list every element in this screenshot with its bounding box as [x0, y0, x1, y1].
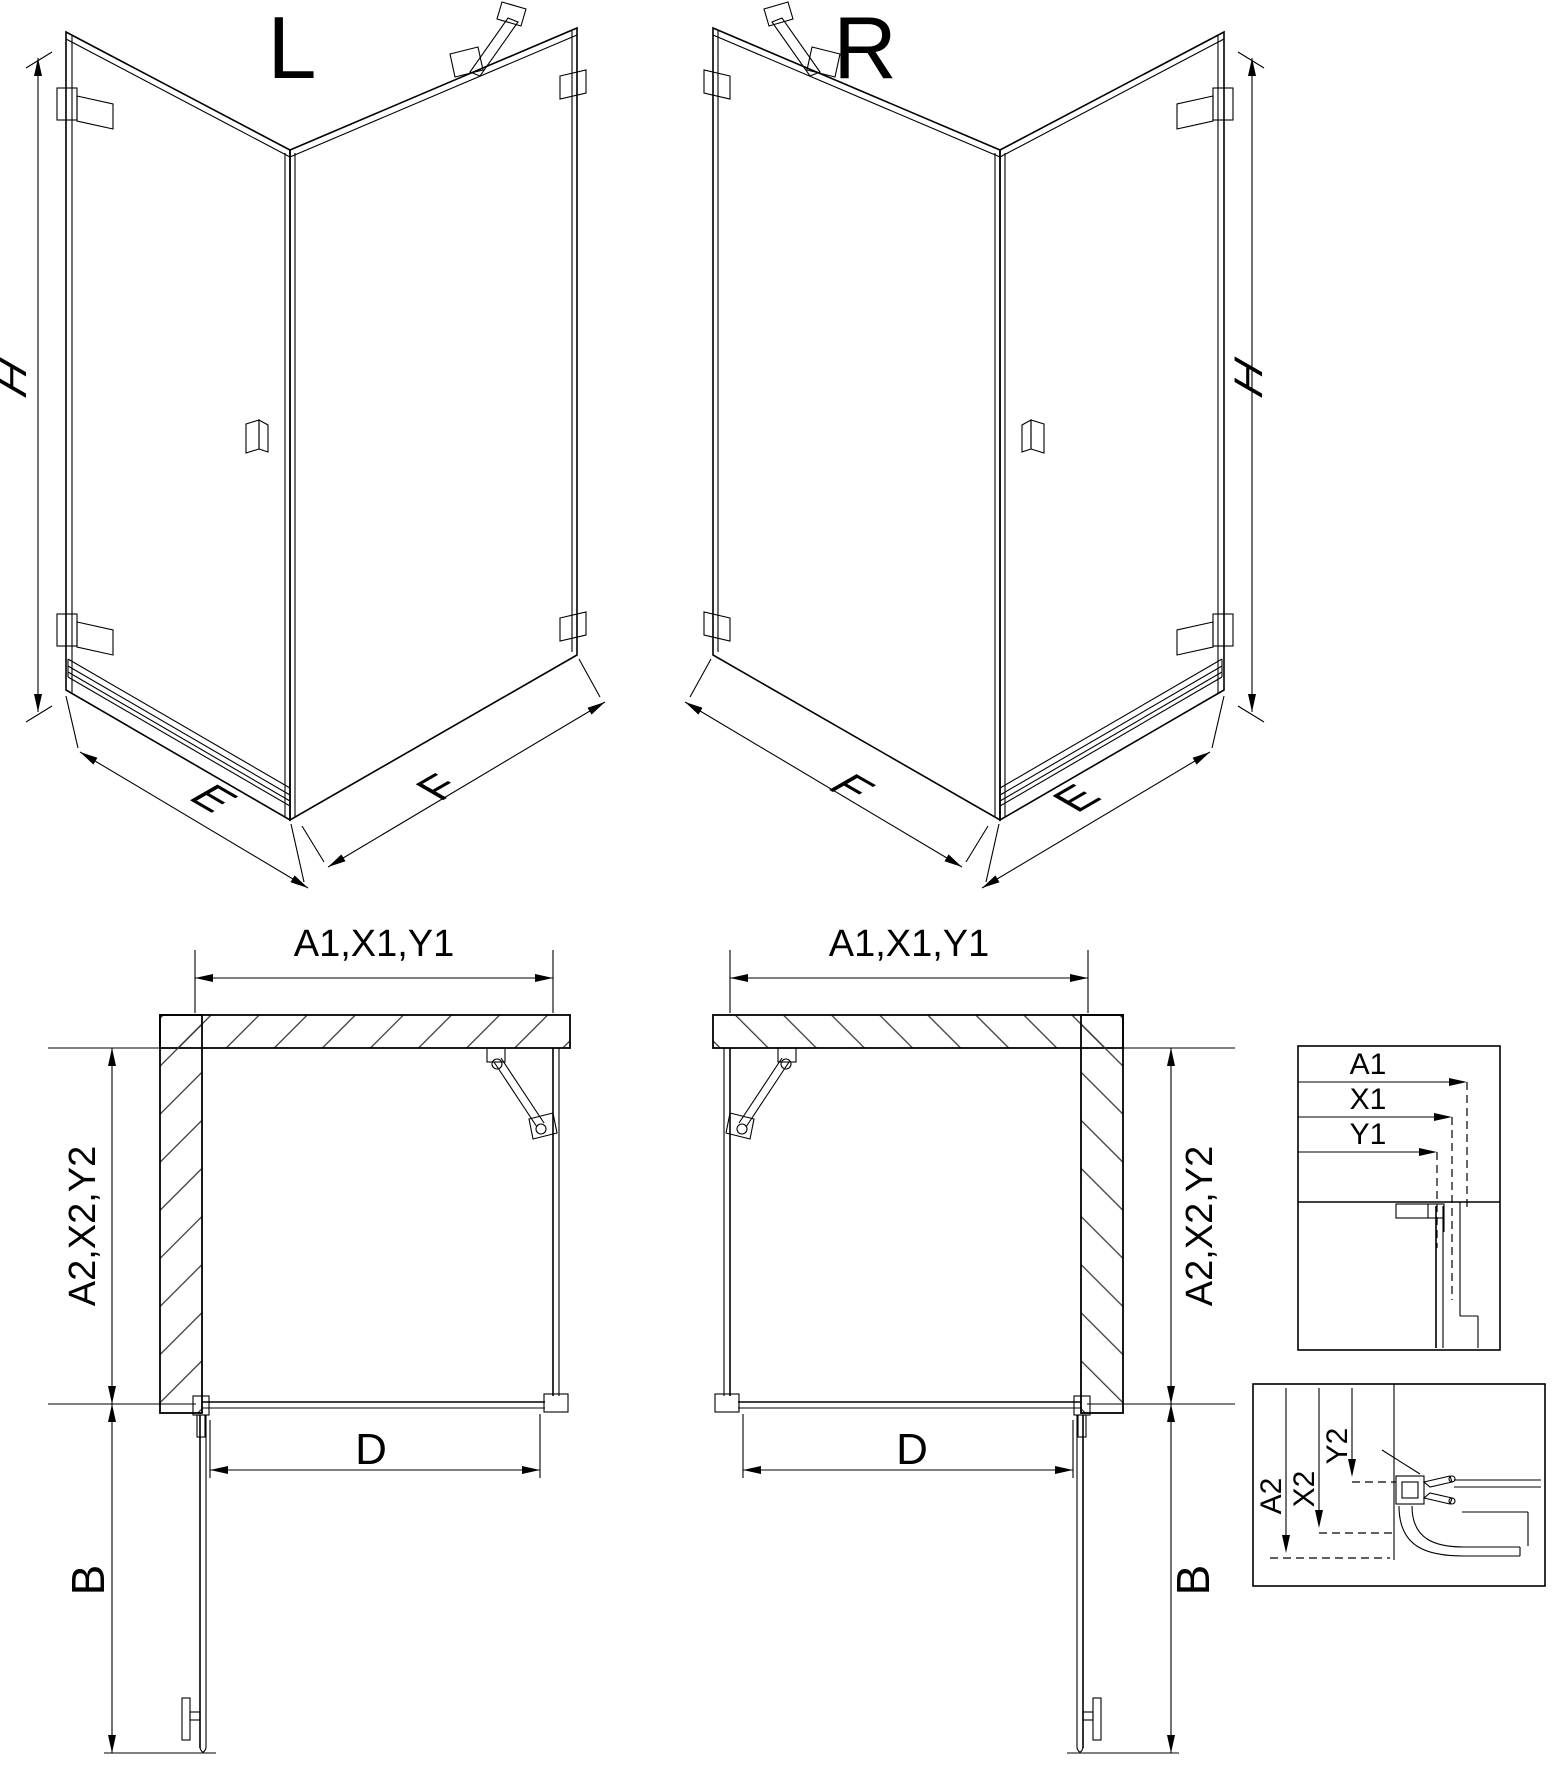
detail-a2-label: A2	[1255, 1478, 1288, 1515]
plan-view-left: A1,X1,Y1 A2,X2,Y2 D B	[48, 923, 570, 1753]
variant-label-right: R	[833, 0, 897, 97]
door-width-label-left: E	[178, 777, 250, 818]
plan-left-width-dims: A1,X1,Y1	[294, 923, 455, 965]
plan-right-opening-dim: D	[896, 1425, 928, 1474]
view-3d-right: R H E F	[685, 0, 1271, 888]
door-width-label-right: E	[1040, 777, 1112, 818]
plan-view-right: A1,X1,Y1 A2,X2,Y2 D B	[713, 923, 1235, 1753]
panel-width-label-left: F	[403, 767, 472, 807]
panel-width-label-right: F	[817, 767, 886, 807]
plan-left-swing-dim: B	[62, 1565, 114, 1596]
detail-box-width-offsets: A1 X1 Y1	[1298, 1046, 1500, 1350]
detail-y2-label: Y2	[1321, 1428, 1354, 1465]
height-dim-label-right: H	[1226, 347, 1271, 406]
view-3d-left: L H E F	[0, 0, 605, 888]
detail-a1-label: A1	[1350, 1048, 1387, 1081]
detail-x2-label: X2	[1288, 1471, 1321, 1508]
detail-box-depth-offsets: A2 X2 Y2	[1253, 1384, 1545, 1586]
detail-x1-label: X1	[1350, 1083, 1387, 1116]
variant-label-left: L	[268, 0, 317, 97]
height-dim-label-left: H	[0, 347, 35, 406]
plan-left-opening-dim: D	[355, 1425, 387, 1474]
plan-left-depth-dims: A2,X2,Y2	[62, 1146, 104, 1307]
detail-y1-label: Y1	[1350, 1118, 1387, 1151]
plan-right-width-dims: A1,X1,Y1	[829, 923, 990, 965]
shower-enclosure-technical-drawing: L H E F R H E F A1,X1,Y1 A2,X2,Y2 D B A1…	[0, 0, 1563, 1769]
plan-right-depth-dims: A2,X2,Y2	[1179, 1146, 1221, 1307]
plan-right-swing-dim: B	[1167, 1565, 1219, 1596]
